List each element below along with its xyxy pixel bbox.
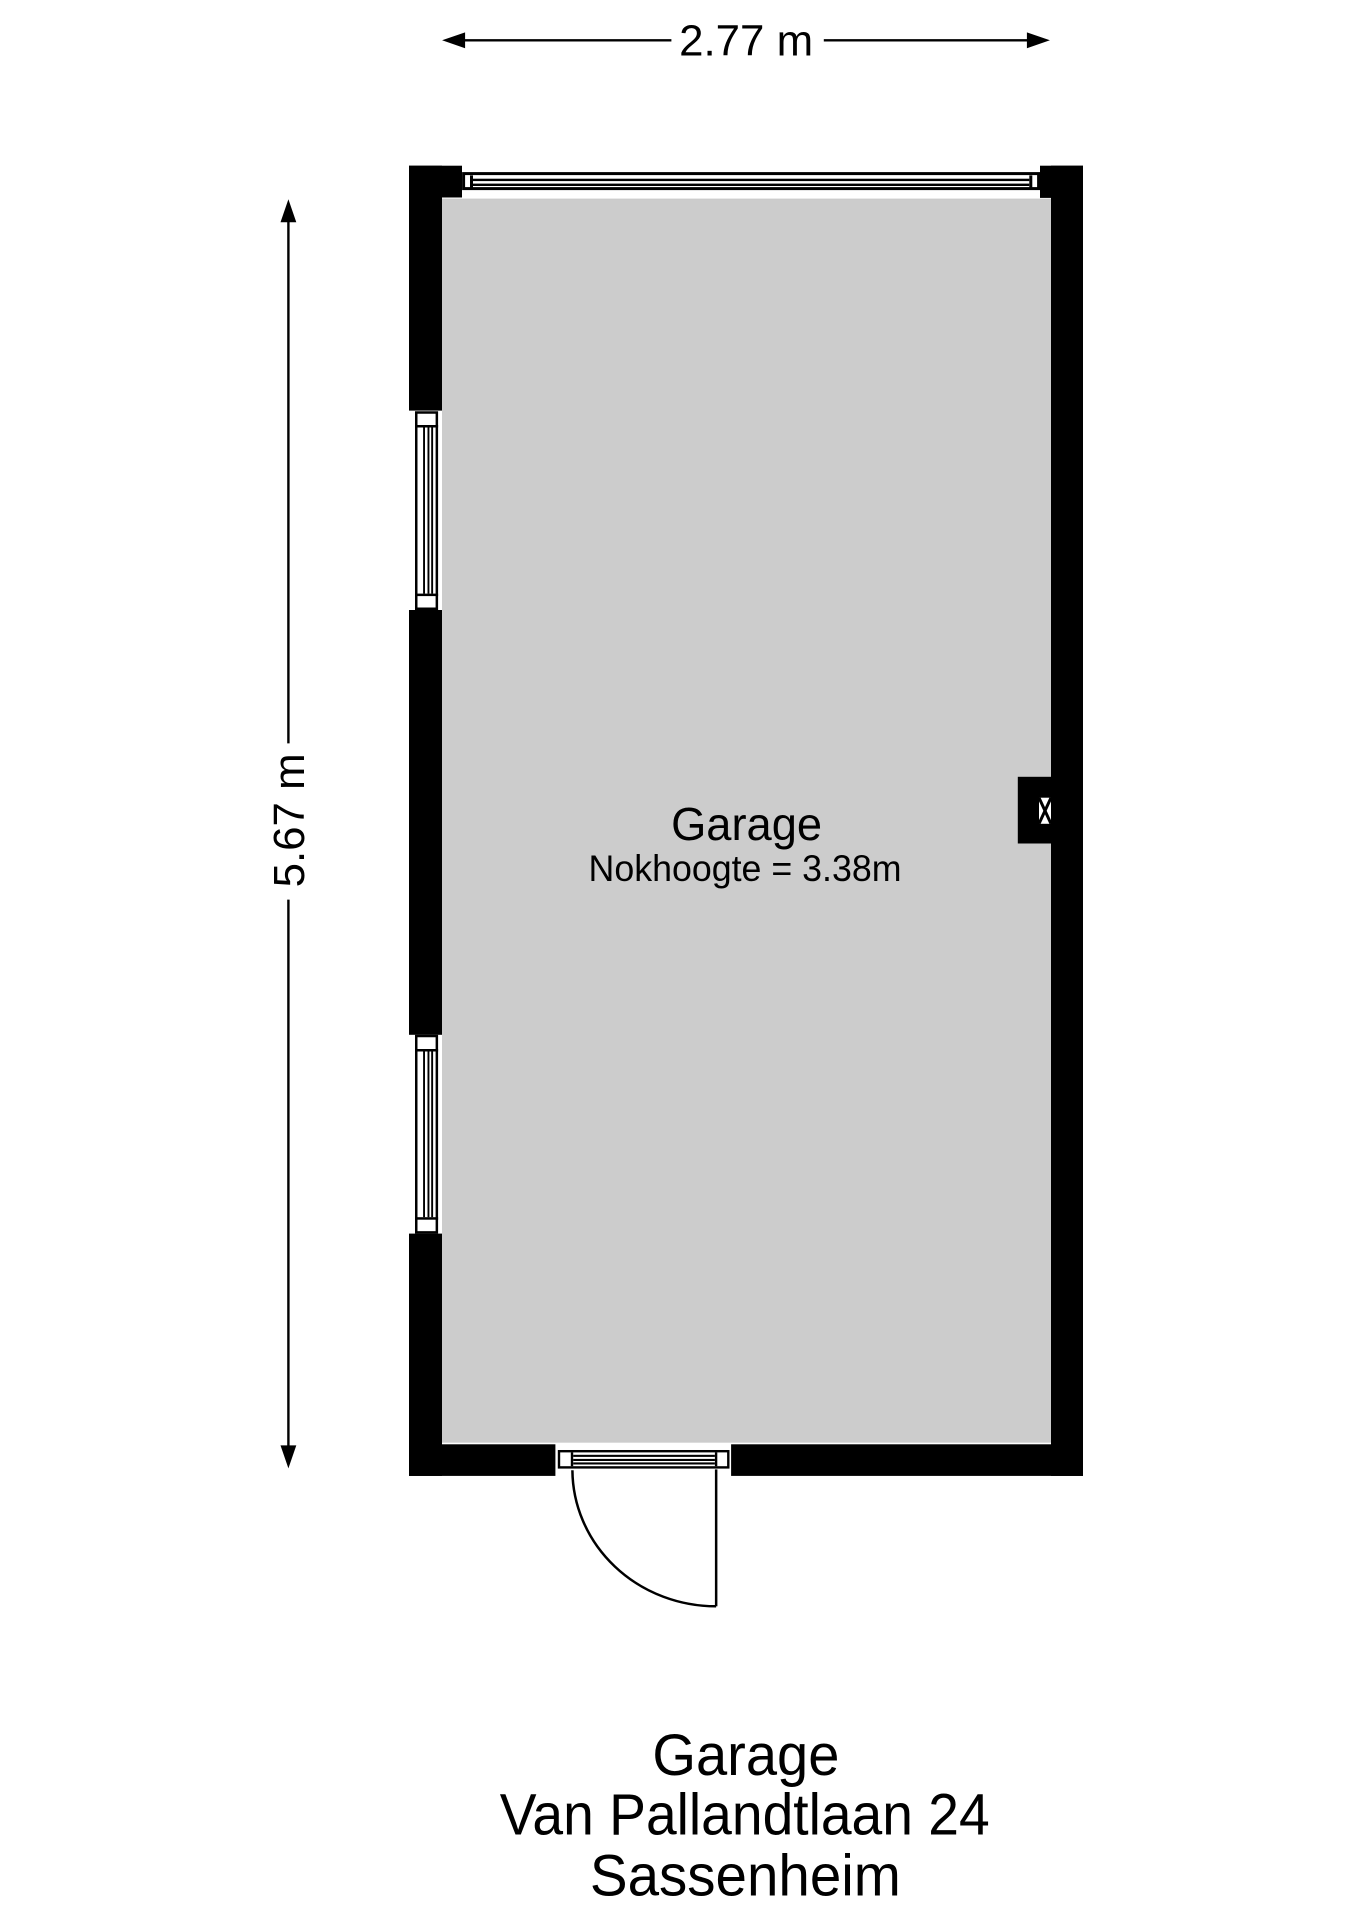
svg-text:2.77 m: 2.77 m — [679, 17, 813, 66]
svg-text:5.67 m: 5.67 m — [265, 753, 314, 887]
svg-text:Sassenheim: Sassenheim — [590, 1844, 901, 1909]
svg-text:Nokhoogte = 3.38m: Nokhoogte = 3.38m — [589, 848, 902, 889]
svg-text:Van Pallandtlaan 24: Van Pallandtlaan 24 — [500, 1783, 990, 1848]
svg-text:Garage: Garage — [671, 798, 822, 850]
svg-text:Garage: Garage — [652, 1723, 839, 1788]
